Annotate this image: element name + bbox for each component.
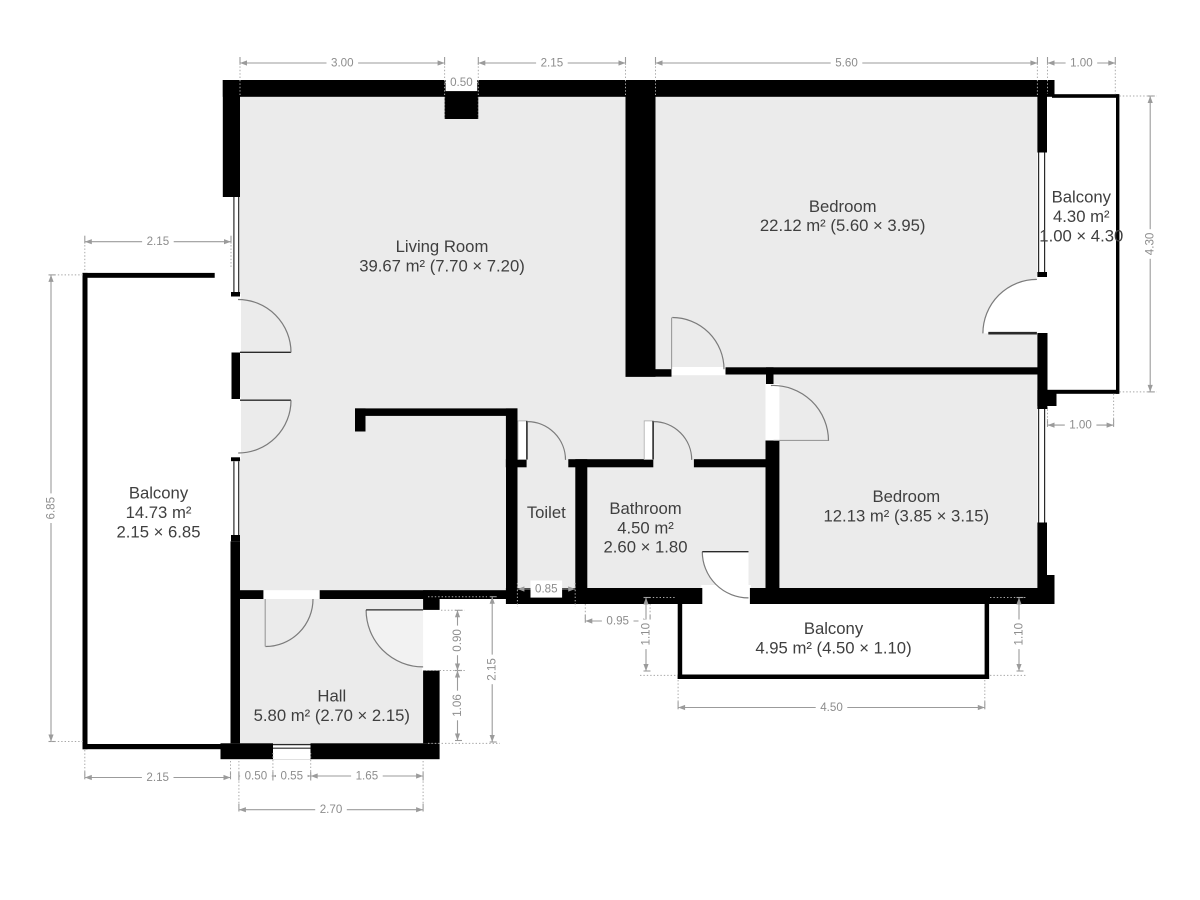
svg-text:1.10: 1.10 xyxy=(1013,623,1026,646)
svg-text:4.30: 4.30 xyxy=(1144,233,1157,256)
svg-text:Balcony: Balcony xyxy=(129,484,189,503)
svg-text:4.50 m²: 4.50 m² xyxy=(617,518,674,537)
svg-text:0.90: 0.90 xyxy=(451,629,464,652)
svg-text:Living Room: Living Room xyxy=(396,237,489,256)
svg-text:2.15: 2.15 xyxy=(486,658,499,681)
svg-text:0.55: 0.55 xyxy=(281,770,304,783)
svg-text:Bedroom: Bedroom xyxy=(809,197,877,216)
svg-text:3.00: 3.00 xyxy=(331,57,354,70)
svg-text:Toilet: Toilet xyxy=(527,503,566,522)
svg-text:1.00: 1.00 xyxy=(1070,57,1093,70)
svg-text:Bedroom: Bedroom xyxy=(872,487,940,506)
svg-text:6.85: 6.85 xyxy=(45,497,58,520)
svg-text:4.30 m²: 4.30 m² xyxy=(1053,207,1110,226)
svg-text:1.00: 1.00 xyxy=(1069,419,1092,432)
svg-text:0.50: 0.50 xyxy=(450,76,473,89)
svg-text:1.00 × 4.30: 1.00 × 4.30 xyxy=(1039,226,1123,245)
svg-text:2.15: 2.15 xyxy=(541,57,564,70)
svg-text:2.15: 2.15 xyxy=(146,771,169,784)
svg-text:22.12 m² (5.60 × 3.95): 22.12 m² (5.60 × 3.95) xyxy=(760,216,926,235)
svg-text:5.60: 5.60 xyxy=(835,57,858,70)
svg-text:14.73 m²: 14.73 m² xyxy=(126,503,192,522)
svg-text:Bathroom: Bathroom xyxy=(609,499,681,518)
svg-text:5.80 m² (2.70 × 2.15): 5.80 m² (2.70 × 2.15) xyxy=(254,706,410,725)
svg-text:4.95 m² (4.50 × 1.10): 4.95 m² (4.50 × 1.10) xyxy=(755,638,911,657)
svg-text:2.60 × 1.80: 2.60 × 1.80 xyxy=(604,538,688,557)
svg-text:2.15: 2.15 xyxy=(147,235,170,248)
svg-text:2.15 × 6.85: 2.15 × 6.85 xyxy=(117,522,201,541)
svg-text:0.50: 0.50 xyxy=(245,770,268,783)
svg-text:39.67 m² (7.70 × 7.20): 39.67 m² (7.70 × 7.20) xyxy=(359,257,525,276)
svg-text:1.06: 1.06 xyxy=(451,694,464,717)
svg-text:12.13 m² (3.85 × 3.15): 12.13 m² (3.85 × 3.15) xyxy=(824,506,990,525)
svg-text:0.85: 0.85 xyxy=(535,583,558,596)
svg-text:2.70: 2.70 xyxy=(320,803,343,816)
svg-text:1.10: 1.10 xyxy=(640,623,653,646)
svg-text:Hall: Hall xyxy=(317,687,346,706)
svg-text:0.95: 0.95 xyxy=(606,615,629,628)
svg-text:4.50: 4.50 xyxy=(820,701,843,714)
svg-text:Balcony: Balcony xyxy=(804,619,864,638)
svg-text:1.65: 1.65 xyxy=(356,770,379,783)
svg-text:Balcony: Balcony xyxy=(1052,188,1112,207)
